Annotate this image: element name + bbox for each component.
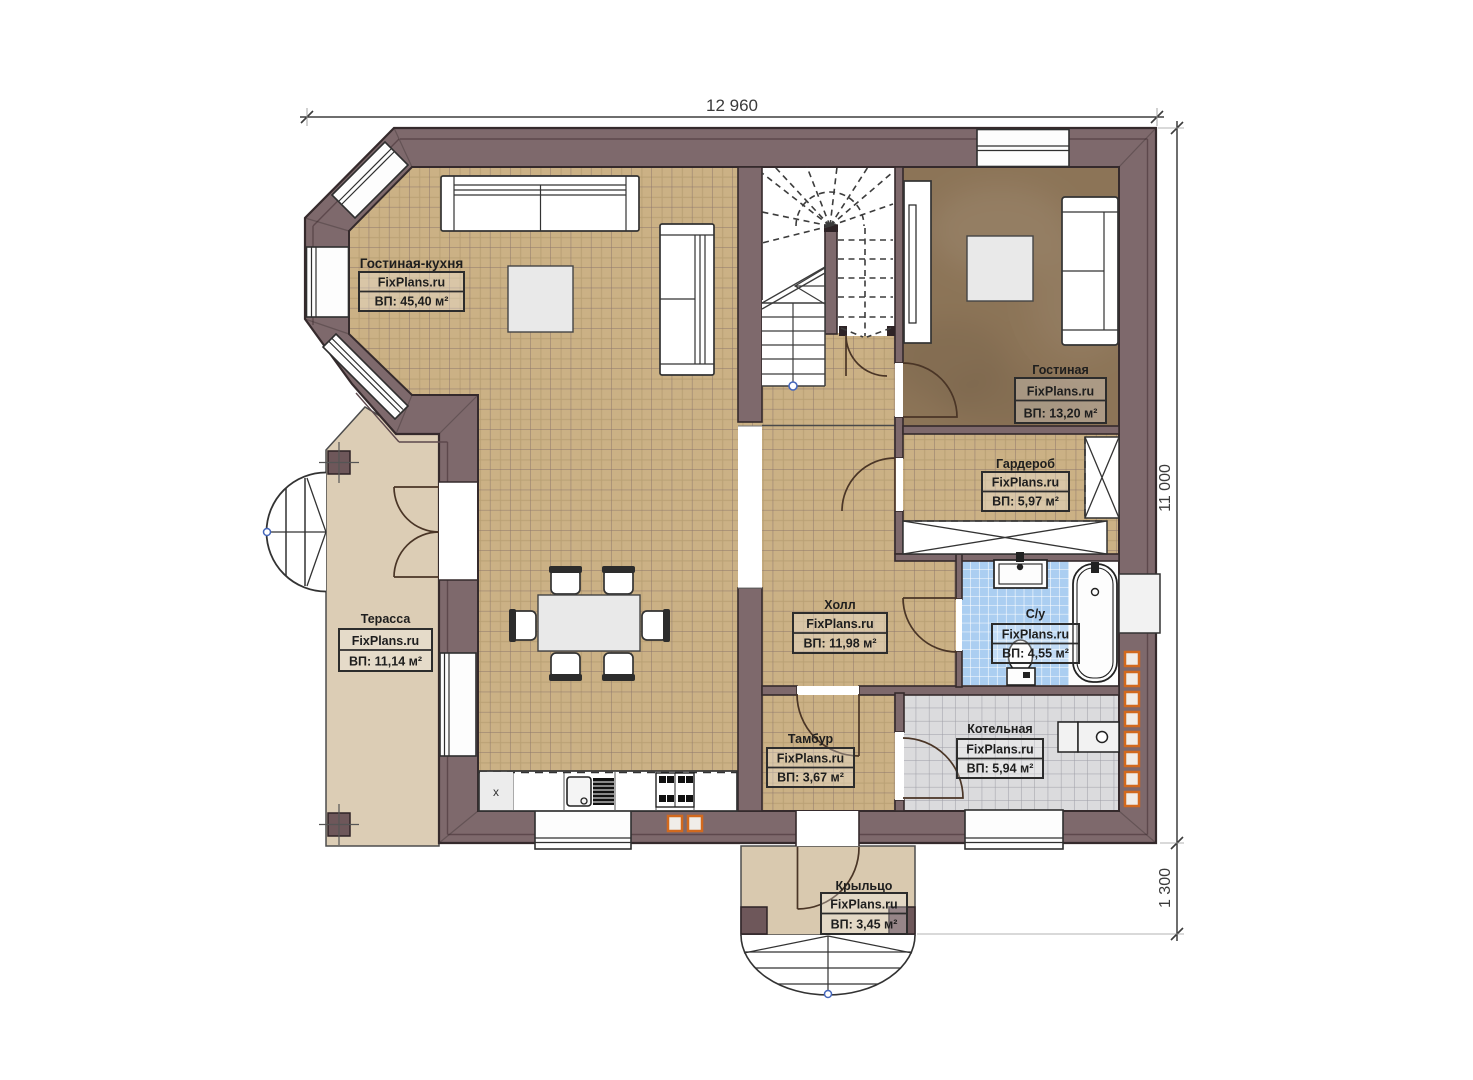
svg-text:FixPlans.ru: FixPlans.ru [830, 898, 897, 912]
svg-text:Гардероб: Гардероб [996, 457, 1055, 471]
svg-text:ВП: 5,94 м²: ВП: 5,94 м² [967, 762, 1034, 776]
svg-text:ВП: 3,45 м²: ВП: 3,45 м² [831, 918, 898, 932]
svg-text:12 960: 12 960 [706, 96, 758, 115]
svg-text:ВП: 3,67 м²: ВП: 3,67 м² [777, 771, 844, 785]
svg-text:ВП: 11,98 м²: ВП: 11,98 м² [803, 637, 876, 651]
svg-text:FixPlans.ru: FixPlans.ru [1002, 628, 1069, 642]
svg-text:FixPlans.ru: FixPlans.ru [992, 476, 1059, 490]
svg-text:FixPlans.ru: FixPlans.ru [352, 634, 419, 648]
svg-text:ВП: 45,40 м²: ВП: 45,40 м² [375, 295, 449, 309]
svg-text:Тамбур: Тамбур [788, 732, 834, 746]
svg-text:Крыльцо: Крыльцо [836, 879, 893, 893]
svg-text:Котельная: Котельная [967, 722, 1032, 736]
svg-text:x: x [493, 785, 499, 799]
svg-text:Гостиная: Гостиная [1032, 363, 1089, 377]
svg-text:Холл: Холл [824, 598, 855, 612]
svg-text:FixPlans.ru: FixPlans.ru [966, 743, 1033, 757]
svg-text:Терасса: Терасса [361, 612, 412, 626]
svg-text:ВП: 5,97 м²: ВП: 5,97 м² [992, 495, 1059, 509]
svg-text:FixPlans.ru: FixPlans.ru [378, 276, 445, 290]
svg-text:1 300: 1 300 [1157, 868, 1174, 908]
svg-text:ВП: 11,14 м²: ВП: 11,14 м² [349, 655, 422, 669]
svg-text:ВП: 4,55 м²: ВП: 4,55 м² [1002, 647, 1069, 661]
svg-text:С/у: С/у [1026, 607, 1046, 621]
svg-text:FixPlans.ru: FixPlans.ru [1027, 385, 1094, 399]
svg-text:ВП: 13,20 м²: ВП: 13,20 м² [1024, 407, 1098, 421]
svg-text:11 000: 11 000 [1157, 464, 1174, 512]
svg-text:Гостиная-кухня: Гостиная-кухня [360, 256, 463, 271]
svg-text:FixPlans.ru: FixPlans.ru [777, 752, 844, 766]
svg-text:FixPlans.ru: FixPlans.ru [806, 617, 873, 631]
